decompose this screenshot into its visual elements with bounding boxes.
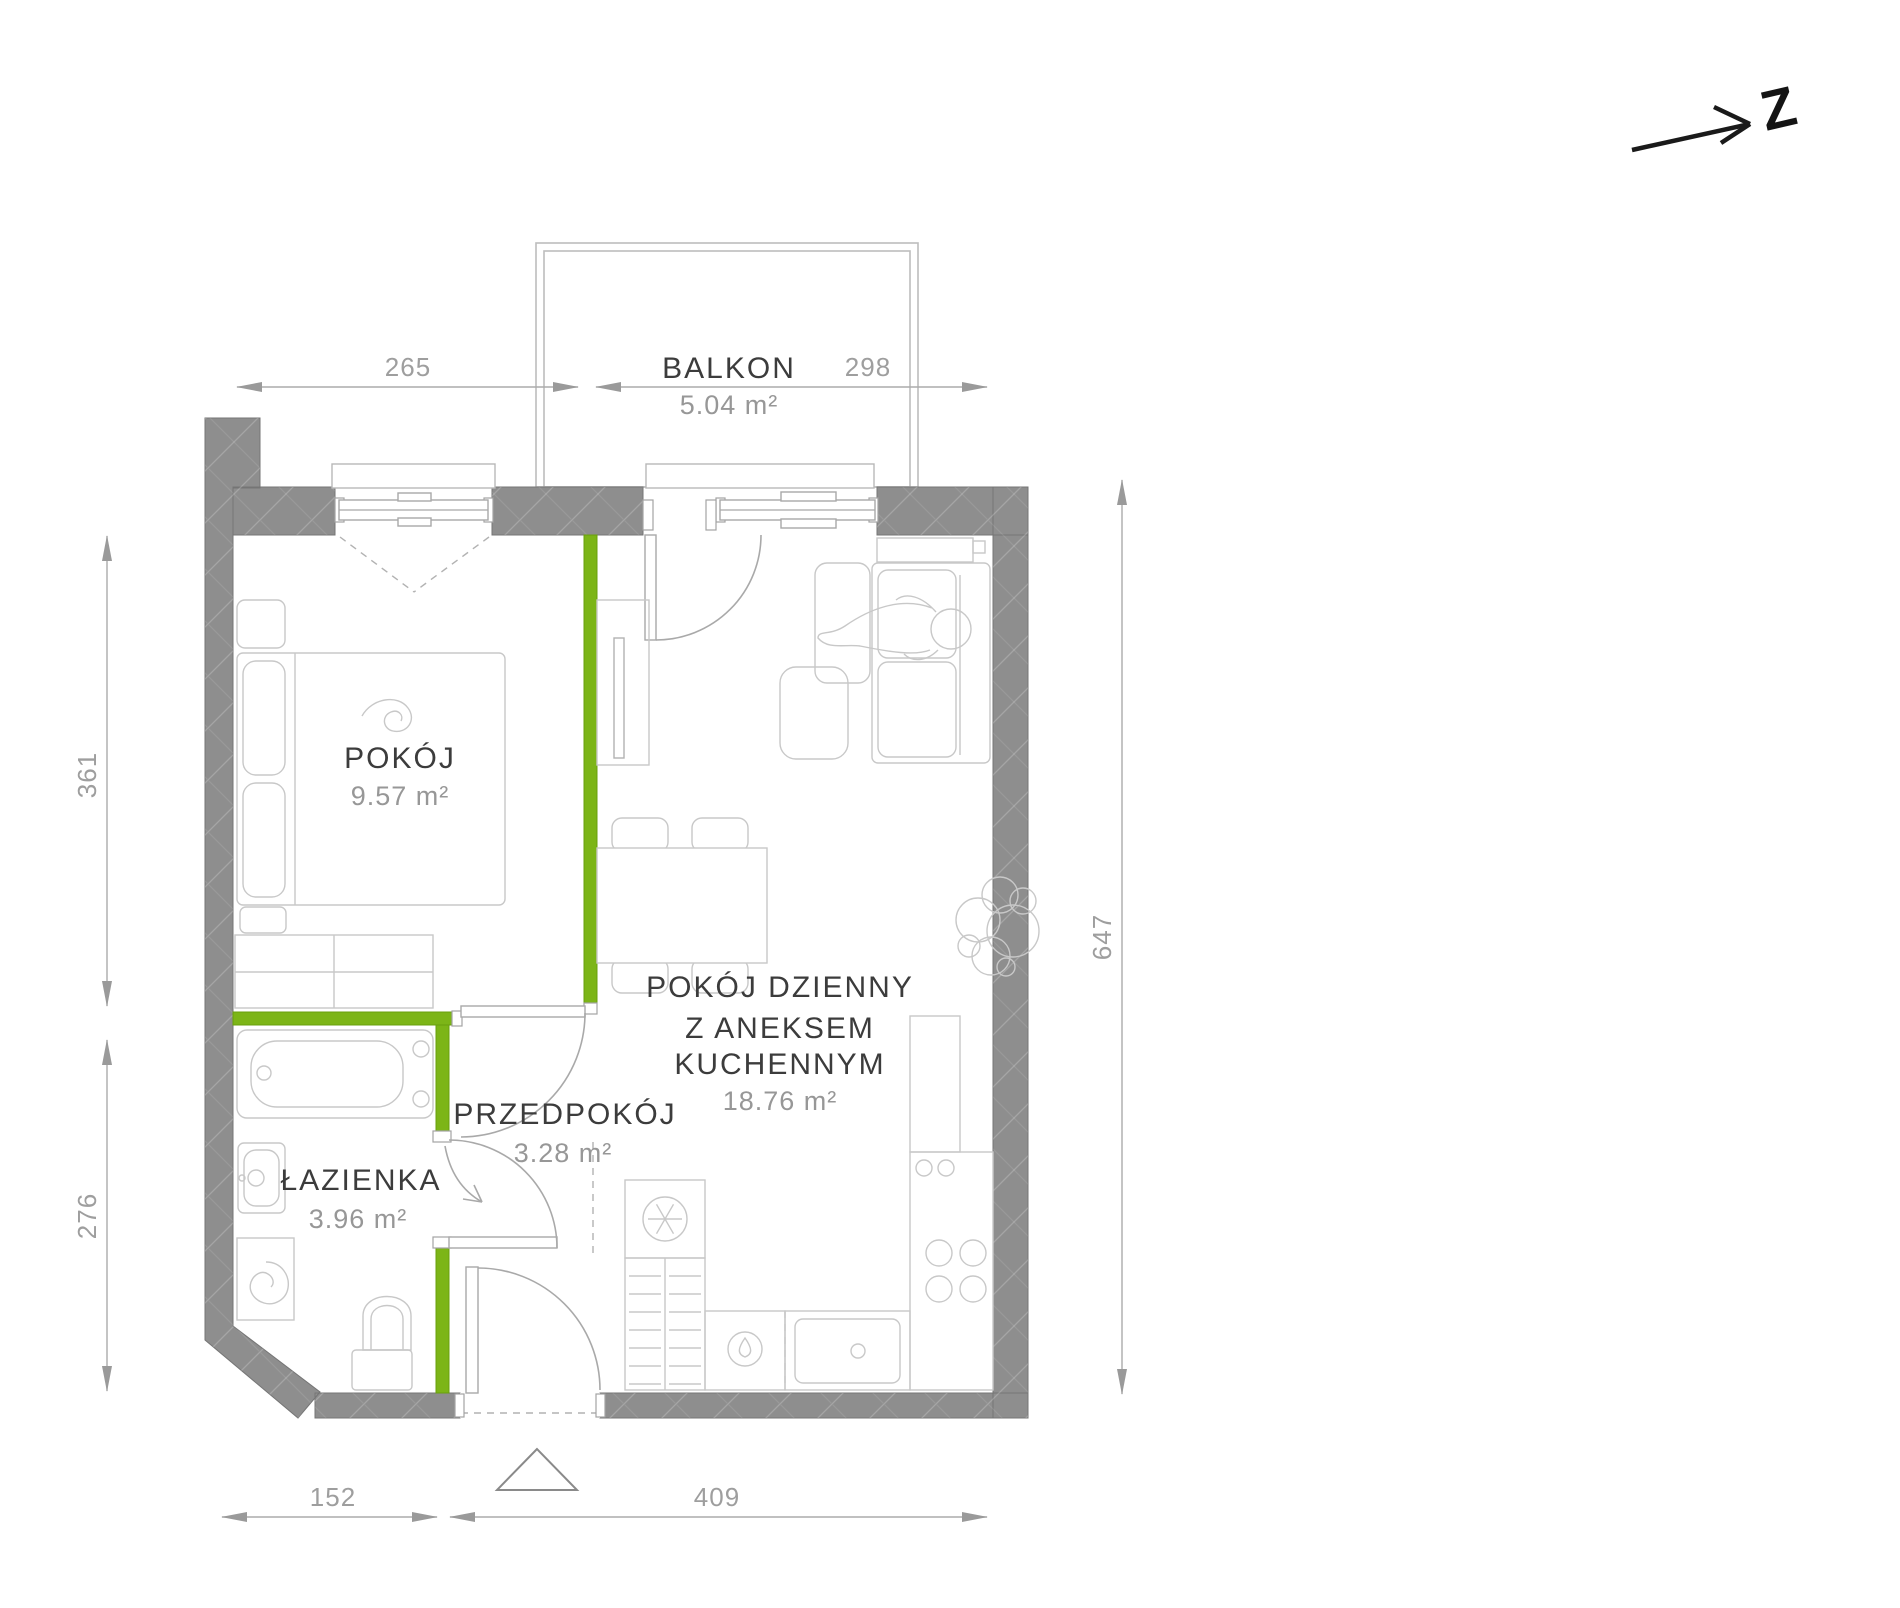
green-wall-living-divider <box>584 535 597 1008</box>
person-figure <box>818 596 971 660</box>
sofa <box>815 563 990 763</box>
bed <box>237 653 505 905</box>
room-area-pokoj: 9.57 m² <box>351 781 450 811</box>
dim-top-left: 265 <box>385 352 431 382</box>
armchair <box>780 667 848 759</box>
dim-right: 647 <box>1087 914 1117 960</box>
toilet <box>352 1297 412 1391</box>
nightstand-small <box>240 907 286 933</box>
room-area-lazienka: 3.96 m² <box>309 1204 408 1234</box>
entrance-door <box>455 1267 605 1418</box>
room-label-salon-1: POKÓJ DZIENNY <box>646 971 914 1004</box>
floor-plan-page: BALKON 5.04 m² POKÓJ 9.57 m² POKÓJ DZIEN… <box>0 0 1900 1608</box>
balcony-door <box>643 500 761 640</box>
washing-machine <box>237 1238 294 1320</box>
compass-label: Z <box>1755 74 1803 143</box>
hob-counter <box>910 1152 993 1390</box>
drum-spiral <box>250 1262 288 1304</box>
entrance-triangle-icon <box>497 1449 577 1490</box>
sink-basin <box>795 1319 900 1383</box>
green-wall-bathroom-top <box>233 1012 452 1025</box>
dining-table <box>597 848 767 963</box>
chair <box>692 818 748 852</box>
sideboard <box>877 538 985 562</box>
burner-icon <box>926 1276 952 1302</box>
living-room-window <box>646 464 878 528</box>
dim-left-upper: 361 <box>72 752 102 798</box>
dim-left-lower: 276 <box>72 1193 102 1239</box>
room-label-przedpokoj: PRZEDPOKÓJ <box>453 1098 676 1131</box>
dim-top-right: 298 <box>845 352 891 382</box>
burner-icon <box>926 1240 952 1266</box>
dim-bottom-right: 409 <box>694 1482 740 1512</box>
dim-bottom-left: 152 <box>310 1482 356 1512</box>
washbasin <box>238 1143 285 1213</box>
pantry-cabinet <box>625 1258 705 1390</box>
room-label-pokoj: POKÓJ <box>344 742 456 775</box>
room-area-przedpokoj: 3.28 m² <box>514 1138 613 1168</box>
wardrobe <box>235 935 433 1008</box>
chair <box>612 818 668 852</box>
room-label-lazienka: ŁAZIENKA <box>280 1164 441 1197</box>
floor-plan-canvas: BALKON 5.04 m² POKÓJ 9.57 m² POKÓJ DZIEN… <box>0 0 1900 1608</box>
burner-icon <box>960 1276 986 1302</box>
dining-set <box>597 818 767 993</box>
green-wall-bathroom-east-upper <box>436 1025 449 1133</box>
room-label-salon-2: Z ANEKSEM <box>685 1012 875 1045</box>
kitchen-counter <box>705 1311 910 1390</box>
tv-cabinet <box>597 600 649 765</box>
compass: Z <box>1632 74 1802 150</box>
room-label-balkon: BALKON <box>662 352 796 385</box>
bathtub <box>237 1030 433 1118</box>
room-area-salon: 18.76 m² <box>723 1086 838 1116</box>
living-room-furniture <box>597 538 1039 993</box>
window-opening-direction <box>340 537 489 592</box>
room-area-balkon: 5.04 m² <box>680 390 779 420</box>
green-wall-bathroom-east-lower <box>436 1248 449 1393</box>
bedroom-window <box>332 464 495 592</box>
entry-direction-arrow <box>445 1146 482 1202</box>
nightstand <box>237 600 285 648</box>
room-label-salon-3: KUCHENNYM <box>674 1048 885 1081</box>
drain-icon <box>739 1338 750 1357</box>
fridge <box>625 1180 705 1258</box>
burner-icon <box>960 1240 986 1266</box>
